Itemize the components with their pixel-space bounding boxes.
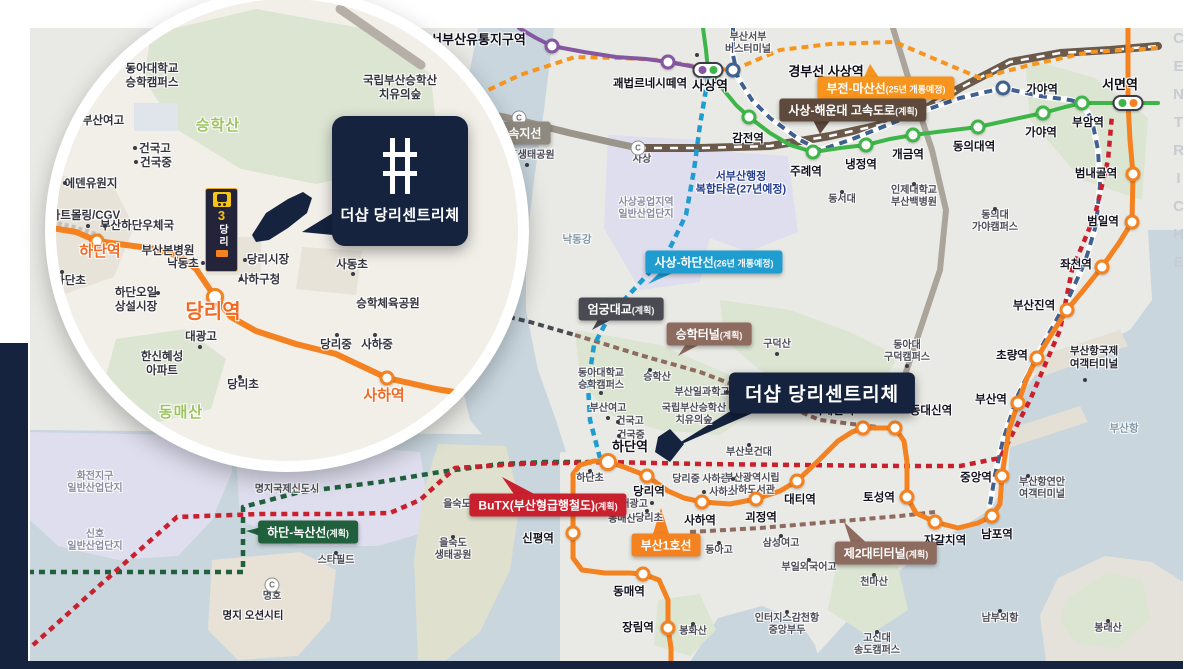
inset-poi-label: 에덴유원지 [65,177,118,191]
poi-dot [198,345,202,349]
poi-dot [351,272,355,276]
station-label: 동의대역 [953,140,995,154]
poi-dot [63,181,67,185]
station-label: 부암역 [1072,116,1104,130]
poi-dot [1106,619,1110,623]
station-marker [545,39,560,54]
poi-label: 스타필드 [318,555,355,567]
poi-label: 천마산 [860,577,888,589]
inset-poi-label: 국립부산승학산 치유의숲 [363,74,437,102]
poi-label: 을숙도 [443,499,471,511]
poi-label: 하단초 [576,473,604,485]
callout-sub-label: (계획) [895,107,918,117]
centriche-watermark: CENTRICHE [1170,30,1187,282]
inset-poi-label: 부산하단우체국 [100,219,174,233]
station-marker [1095,260,1110,275]
callout-sub-label: (계획) [595,502,618,512]
poi-dot [451,535,455,539]
poi-dot [606,416,610,420]
station-marker [859,138,874,153]
line-dot-icon [699,66,707,74]
station-label: 동대신역 [910,404,952,418]
poi-label: 인터지스감천항 중앙부두 [755,613,819,637]
line-callout: 제2대티터널(계획) [835,542,937,565]
station-label: 좌천역 [1060,258,1092,272]
inset-poi-label: 사하역 [363,387,404,405]
inset-poi-label: 대광고 [185,330,217,344]
poi-label: 신호 일반산업단지 [67,529,122,553]
station-marker [888,421,903,436]
poi-dot [747,443,751,447]
poi-label: 부산항 [1110,423,1139,436]
line-callout: 부전-마산선(25년 개통예정) [817,77,954,100]
station-label: 당리역 [633,485,665,499]
inset-poi-label: 동아대학교 승학캠퍼스 [126,62,179,90]
poi-dot [616,420,620,424]
station-marker [1125,215,1140,230]
station-marker [985,509,1000,524]
station-label: 서면역 [1102,77,1138,93]
station-marker [971,120,986,135]
left-accent-bar [0,343,28,669]
inset-poi-label: 승학체육공원 [356,297,419,311]
line1-color-mark [216,250,228,257]
station-marker [1075,96,1090,111]
poi-dot [334,551,338,555]
poi-label: 동서대 [828,194,856,206]
poi-dot [993,207,997,211]
poi-label: 부산항연안 여객터미널 [1019,477,1065,501]
poi-dot [134,160,138,164]
poi-label: 동아대 구덕캠퍼스 [884,340,930,364]
station-marker [790,474,805,489]
interchange-icon: C [631,141,646,156]
poi-dot [86,224,90,228]
bottom-accent-bar [28,661,1183,669]
inset-poi-label: 사하구청 [238,273,280,287]
inset-poi-label: 당리초 [227,378,259,392]
poi-label: 승학산 [643,372,671,384]
poi-label: 화전지구 일반산업단지 [67,471,122,495]
poi-label: 국립부산승학산 치유의숲 [662,403,726,427]
poi-dot [373,333,377,337]
station-marker [806,145,821,160]
station-label: 감전역 [732,132,764,146]
station-label: 주례역 [790,165,822,179]
inset-poi-label: 당리시장 [247,253,289,267]
poi-label: 봉화산 [679,626,707,638]
station-label: 냉정역 [845,158,877,172]
station-label: 초량역 [996,349,1028,363]
rail-icon [383,138,417,194]
poi-label: 구덕산 [763,339,791,351]
poi-dot [998,609,1002,613]
callout-sub-label: (계획) [906,550,929,560]
poi-label: 부산서부 버스터미널 [725,32,771,56]
station-label: 괘법르네시떼역 [613,77,687,91]
station-marker [742,110,757,125]
poi-dot [731,477,735,481]
line-callout: 하단-녹산선(계획) [258,521,358,544]
rail-icon-bar [383,152,417,157]
poi-label: 명지국제신도시 [255,484,319,496]
station-marker [1036,106,1051,121]
interchange-icon: C [265,578,280,593]
poi-label: 부일외국어고 [781,562,836,574]
line-callout: 승학터널(계획) [667,323,752,346]
line-callout: 엄궁대교(계획) [579,298,664,321]
map-screenshot: 부산서부 버스터미널맥도생태공원낙동강사상공업지역 일반산업단지서부산행정 복합… [0,0,1200,669]
station-marker [996,81,1011,96]
project-name-callout: 더샵 당리센트리체 [729,373,915,414]
poi-label: 명지 오션시티 [223,610,284,623]
inset-poi-label: 당리역 [185,300,240,324]
poi-dot [695,53,699,57]
inset-poi-label: 부산여고 [82,114,124,128]
inset-project-title: 더샵 당리센트리체 [340,204,459,225]
callout-sub-label: (계획) [326,529,349,539]
station-label: 개금역 [892,148,924,162]
poi-label: 을숙도 생태공원 [435,538,472,562]
line-callout: BuTX(부산형급행철도)(계획) [469,494,626,517]
poi-dot [133,146,137,150]
station-label: 장림역 [622,621,654,635]
line-number-badge: 3 [218,209,225,222]
poi-dot [785,610,789,614]
poi-label: 인제대학교 부산백병원 [891,185,937,209]
station-label: 하단역 [612,439,648,455]
station-marker [661,621,676,636]
poi-dot [872,573,876,577]
poi-label: 삼성여고 [763,538,800,550]
poi-label: 봉래산 [1094,623,1122,635]
poi-dot [335,333,339,337]
inset-poi-label: 한신혜성 아파트 [141,350,183,378]
poi-dot [156,291,160,295]
poi-label: 당리중 [672,474,700,486]
station-marker [995,469,1010,484]
station-label: 가야역 [1026,83,1058,97]
transfer-station-marker [693,62,724,78]
poi-label: 부산일과학고 [674,387,729,399]
poi-dot [807,558,811,562]
poi-label: 부산보건대 [726,447,772,459]
inset-poi-label: 사동초 [336,258,368,272]
project-site-marker [655,429,684,462]
poi-label: 부산항국제 여객터미널 [1070,345,1118,371]
poi-dot [1083,378,1087,382]
station-label: 사하역 [684,514,716,528]
station-label: 부산진역 [1013,299,1055,313]
inset-poi-label: 승학산 [196,117,240,135]
line-dot-icon [710,66,718,74]
inset-poi-label: 건국고 [139,142,171,156]
station-marker [636,567,651,582]
poi-dot [243,258,247,262]
station-label: 신평역 [522,532,554,546]
poi-dot [691,622,695,626]
station-label: 대티역 [784,493,816,507]
transfer-station-marker [1113,95,1144,111]
station-totem: 3당리 [205,188,238,272]
inset-detail-map: 동아대학교 승학캠퍼스부산여고승학산건국고건국중에덴유원지아트몰링/CGV부산하… [45,0,529,472]
station-label: 남포역 [981,528,1013,542]
station-marker [856,421,871,436]
poi-dot [775,352,779,356]
zone-bokhap-town [700,150,798,252]
poi-dot [238,375,242,379]
station-marker [900,490,915,505]
station-marker [928,515,943,530]
i-patch-school [134,103,178,131]
line-callout: 사상-하단선(26년 개통예정) [645,251,782,274]
station-label: 범내골역 [1075,167,1117,181]
inset-project-label-box: 더샵 당리센트리체 [332,116,468,246]
callout-sub-label: (26년 개통예정) [714,259,774,269]
rail-icon-bar [405,138,410,194]
poi-dot [779,534,783,538]
line-callout: 부산1호선 [632,534,701,557]
station-marker [1126,167,1141,182]
station-label: 괴정역 [745,511,777,525]
poi-label: 서부산행정 복합타운(27년예정) [696,171,786,198]
poi-label: 동의대 가야캠퍼스 [972,210,1018,234]
station-label: 중앙역 [960,471,992,485]
rail-icon-bar [383,171,417,176]
station-marker [640,469,655,484]
poi-dot [648,368,652,372]
poi-label: 사상 [633,154,651,166]
line-dot-icon [1119,99,1127,107]
poi-dot [840,190,844,194]
poi-label: 건국고 [616,416,644,428]
poi-dot [599,391,603,395]
poi-dot [717,541,721,545]
inset-poi-label: 사하중 [361,338,393,352]
poi-dot [128,67,132,71]
inset-project-site-marker [252,192,312,242]
poi-label: 고신대 송도캠퍼스 [854,633,900,657]
station-label: 사상역 [692,78,728,94]
station-label: 토성역 [863,491,895,505]
poi-dot [650,501,654,505]
inset-poi-label: 하단오일 상설시장 [115,286,157,314]
poi-dot [525,163,529,167]
station-marker [1030,351,1045,366]
line-callout: 사상-해운대 고속도로(계획) [779,99,926,122]
poi-dot [645,509,649,513]
poi-dot [702,490,706,494]
inset-station-marker [380,371,395,386]
poi-label: 남부외항 [982,613,1019,625]
station-marker [1060,303,1075,318]
station-label: 부산역 [975,393,1007,407]
poi-dot [617,434,621,438]
station-marker [599,453,617,471]
station-label: 동매역 [613,585,645,599]
callout-sub-label: (계획) [632,306,655,316]
station-name-vertical: 당리 [217,224,227,248]
poi-dot [905,364,909,368]
poi-dot [239,277,243,281]
poi-label: 동아고 [705,545,733,557]
inset-poi-label: 부산본병원 [142,244,195,258]
poi-dot [60,270,64,274]
inset-poi-label: 건국중 [140,156,172,170]
inset-poi-label: 동매산 [159,404,203,422]
poi-label: 사상공업지역 일반산업단지 [618,197,673,221]
poi-label: 동아대학교 승학캠퍼스 [578,368,624,392]
poi-dot [103,224,107,228]
poi-label: 부산여고 [590,403,627,415]
rail-icon-bar [390,138,395,194]
inset-poi-label: 낙동초 [167,257,199,271]
poi-label: 당리초 [635,513,663,525]
station-label: 가야역 [1025,126,1057,140]
station-label: 범일역 [1087,215,1119,229]
poi-dot [1026,474,1030,478]
inset-box-pointer [302,213,333,235]
station-marker [906,128,921,143]
line-dot-icon [1130,99,1138,107]
callout-sub-label: (25년 개통예정) [886,85,946,95]
poi-label: 낙동강 [563,234,592,247]
inset-poi-label: 당리중 [320,338,352,352]
station-marker [661,55,676,70]
train-icon [213,192,231,207]
poi-dot [875,630,879,634]
station-marker [726,63,741,78]
station-marker [566,526,581,541]
line-daeti2-tunnel [690,512,935,532]
callout-sub-label: (계획) [720,331,743,341]
station-marker [1011,396,1026,411]
inset-poi-label: 하단역 [79,243,120,261]
poi-dot [588,469,592,473]
poi-label: 명호 [263,591,281,603]
inset-poi-label: 하단초 [54,274,86,288]
poi-dot [912,182,916,186]
station-marker [695,495,710,510]
station-marker [749,492,764,507]
